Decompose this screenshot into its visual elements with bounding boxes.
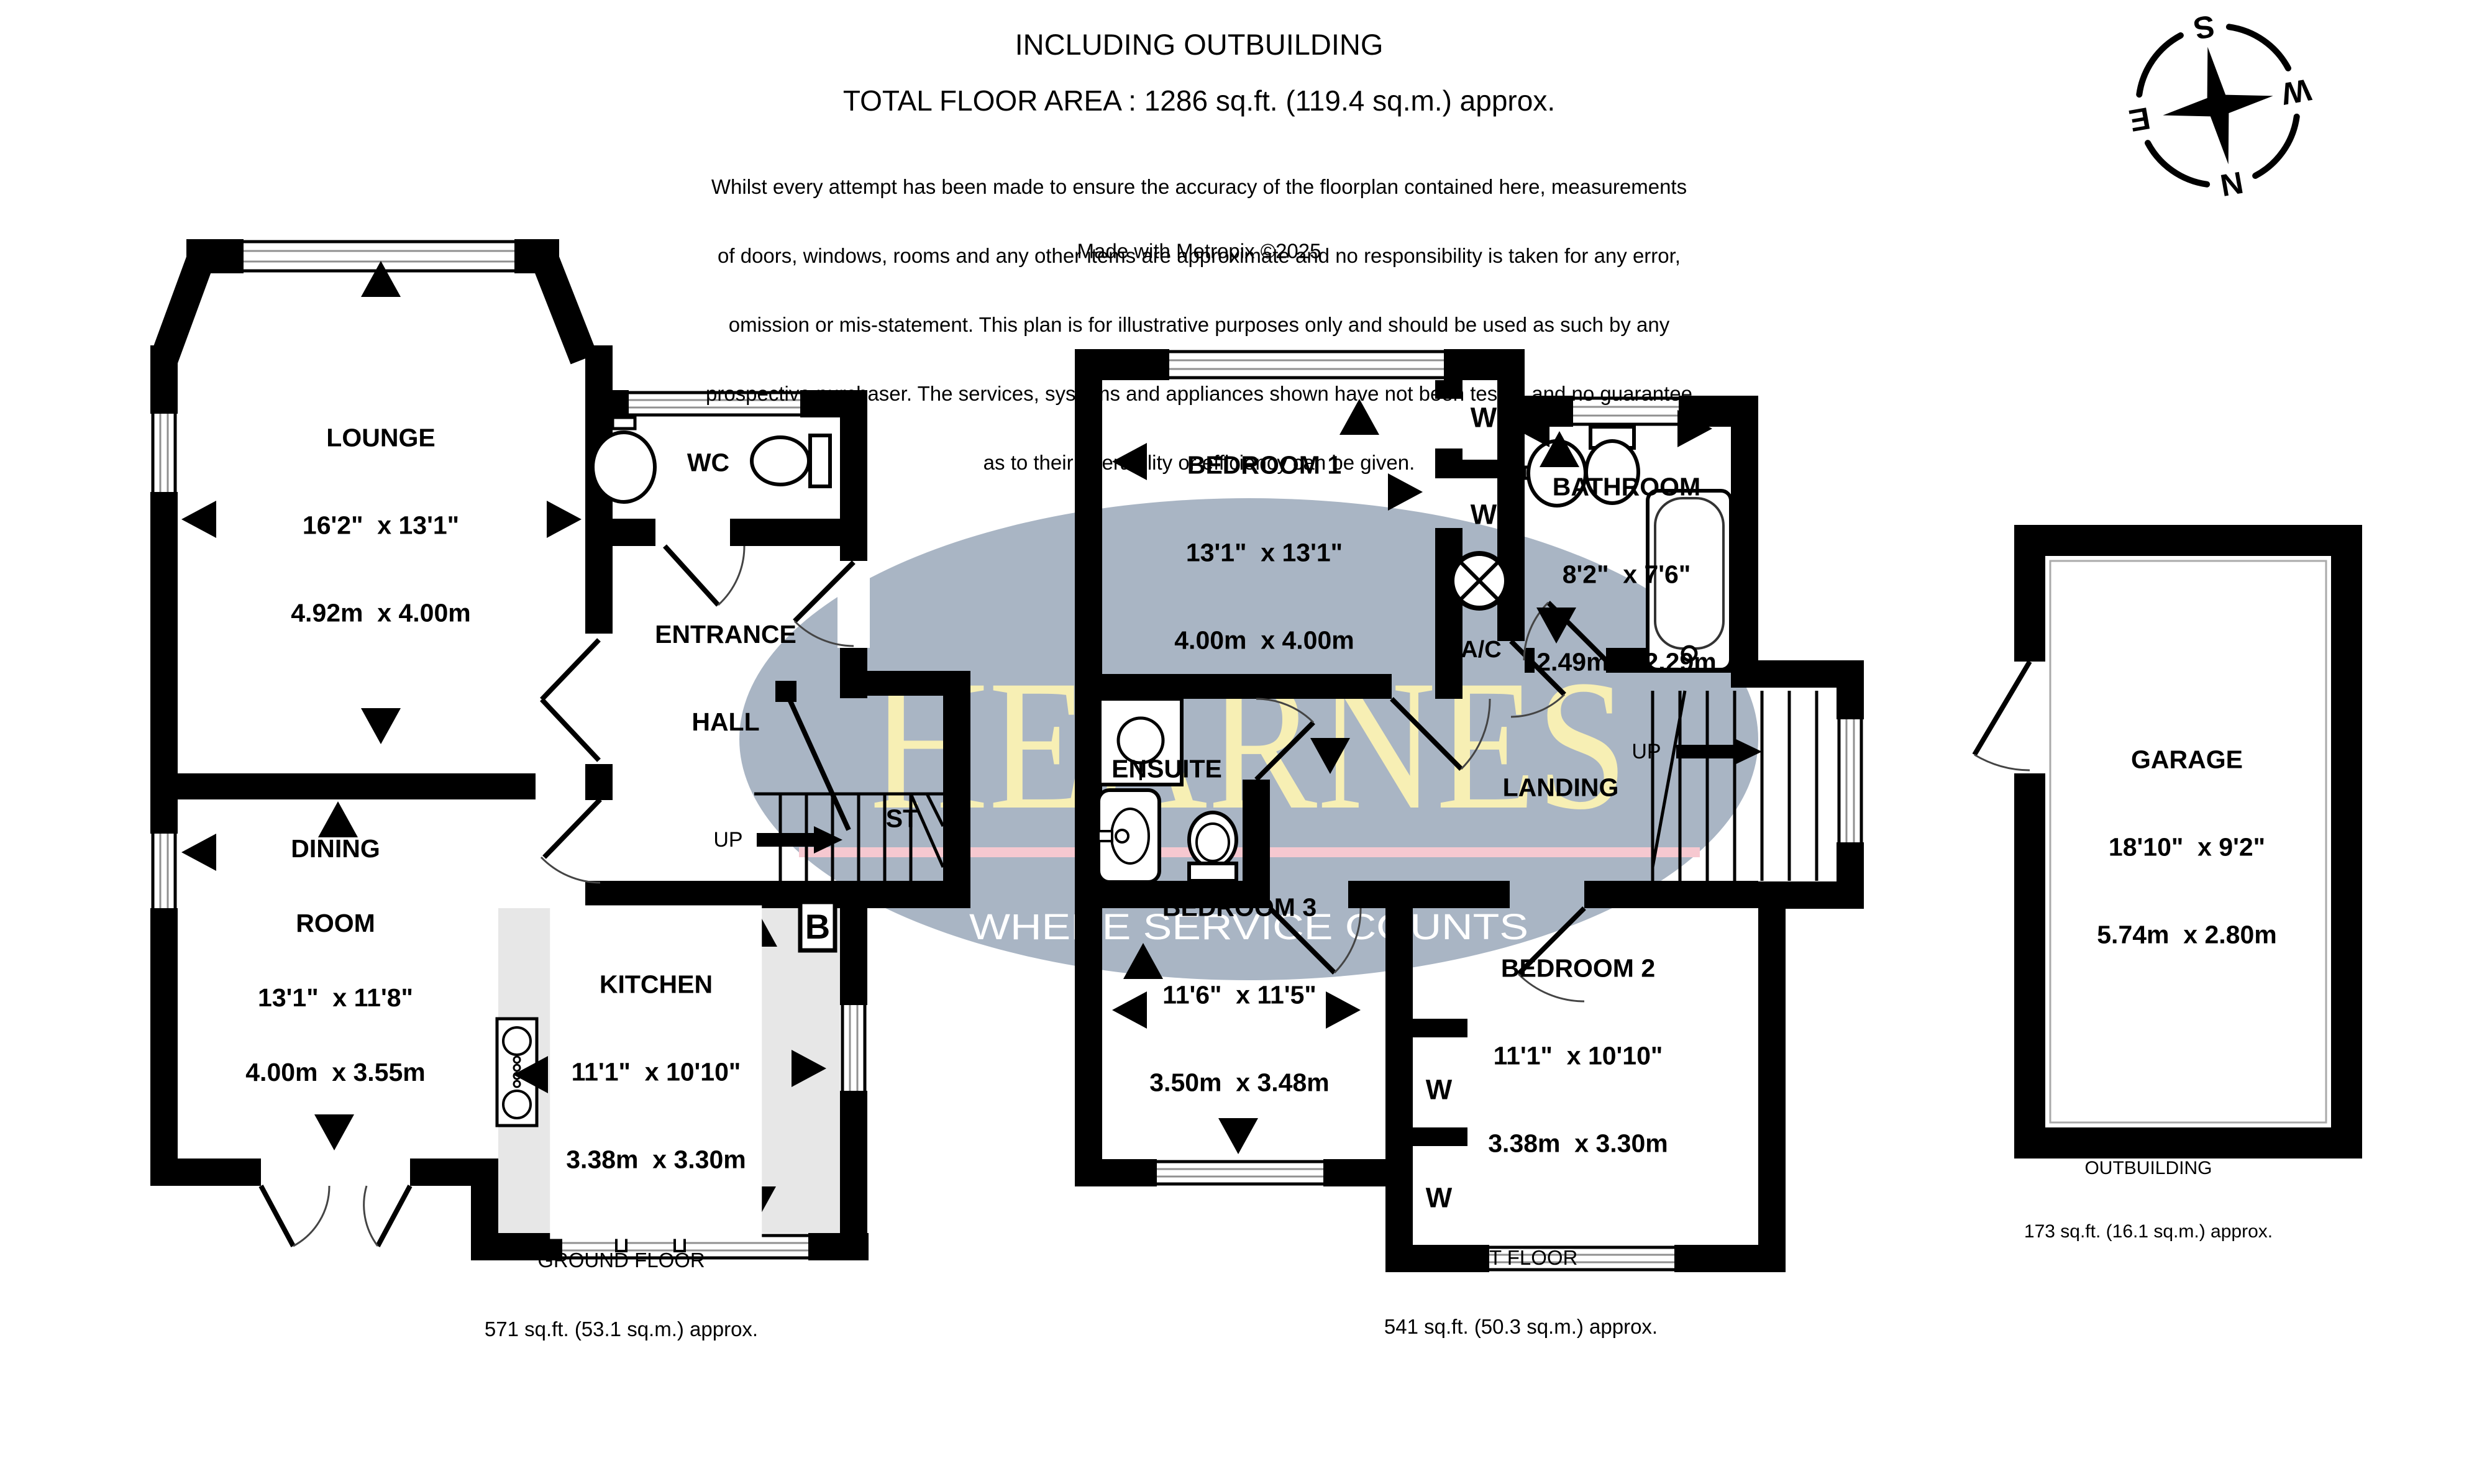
compass-east-label: E xyxy=(2127,101,2153,139)
view-arrow-icon xyxy=(361,708,401,744)
metropix-credit: Made with Metropix ©2025 xyxy=(1077,240,1321,263)
room-label-entrance-hall: ENTRANCE HALL xyxy=(655,562,796,795)
room-label-ensuite: ENSUITE xyxy=(1111,757,1222,782)
room-label-bedroom1: BEDROOM 1 13'1" x 13'1" 4.00m x 4.00m xyxy=(1174,393,1354,714)
stairs-label: ST xyxy=(886,806,918,832)
ac-label: A/C xyxy=(1461,638,1501,662)
wardrobe-label: W xyxy=(1471,501,1497,529)
kitchen-right-window xyxy=(840,1005,867,1091)
room-label-lounge: LOUNGE 16'2" x 13'1" 4.92m x 4.00m xyxy=(291,365,470,686)
landing-window xyxy=(1837,719,1864,842)
ac-fan-icon xyxy=(1452,553,1507,608)
room-label-wc: WC xyxy=(687,448,729,478)
room-label-bedroom2: BEDROOM 2 11'1" x 10'10" 3.38m x 3.30m xyxy=(1488,896,1668,1217)
room-label-kitchen: KITCHEN 11'1" x 10'10" 3.38m x 3.30m xyxy=(550,906,762,1239)
compass-star-icon xyxy=(2153,37,2284,174)
room-label-bathroom: BATHROOM 8'2" x 7'6" 2.49m x 2.29m xyxy=(1536,414,1716,735)
outbuilding-caption: OUTBUILDING 173 sq.ft. (16.1 sq.m.) appr… xyxy=(2024,1116,2273,1285)
view-arrow-icon xyxy=(1326,991,1361,1029)
first-floor-caption: 1ST FLOOR 541 sq.ft. (50.3 sq.m.) approx… xyxy=(1384,1200,1658,1384)
up-label-ground: UP xyxy=(713,829,742,850)
compass-rose-icon: N E S W xyxy=(2112,0,2327,217)
wardrobe-label: W xyxy=(1471,404,1497,432)
dining-left-window xyxy=(150,834,178,908)
view-arrow-icon xyxy=(181,501,216,538)
lounge-left-window xyxy=(150,414,178,492)
wc-door-gap xyxy=(655,516,730,549)
room-label-bedroom3: BEDROOM 3 11'6" x 11'5" 3.50m x 3.48m xyxy=(1149,835,1329,1156)
ground-floor-caption: GROUND FLOOR 571 sq.ft. (53.1 sq.m.) app… xyxy=(485,1203,758,1386)
compass-west-label: W xyxy=(2278,72,2314,111)
bedroom3-window xyxy=(1157,1159,1323,1186)
compass-north-label: N xyxy=(2218,165,2246,203)
bay-wall-right xyxy=(545,261,584,359)
compass-south-label: S xyxy=(2191,8,2217,46)
view-arrow-icon xyxy=(1112,991,1147,1029)
room-label-landing: LANDING xyxy=(1503,775,1619,801)
room-label-dining: DINING ROOM 13'1" x 11'8" 4.00m x 3.55m xyxy=(245,786,425,1134)
wardrobe-label: W xyxy=(1426,1076,1452,1104)
up-label-first: UP xyxy=(1631,741,1661,762)
bay-wall-left xyxy=(164,261,200,359)
view-arrow-icon xyxy=(181,834,216,871)
floorplan-page: HEARNES WHERE SERVICE COUNTS xyxy=(0,0,2487,1484)
boiler-label: B xyxy=(805,909,830,944)
disclaimer-line: omission or mis-statement. This plan is … xyxy=(706,313,1692,336)
total-floor-area: TOTAL FLOOR AREA : 1286 sq.ft. (119.4 sq… xyxy=(843,85,1555,116)
disclaimer-line: Whilst every attempt has been made to en… xyxy=(706,175,1692,198)
page-title: INCLUDING OUTBUILDING xyxy=(1015,29,1384,60)
view-arrow-icon xyxy=(547,501,582,538)
room-label-garage: GARAGE 18'10" x 9'2" 5.74m x 2.80m xyxy=(2097,687,2276,1008)
